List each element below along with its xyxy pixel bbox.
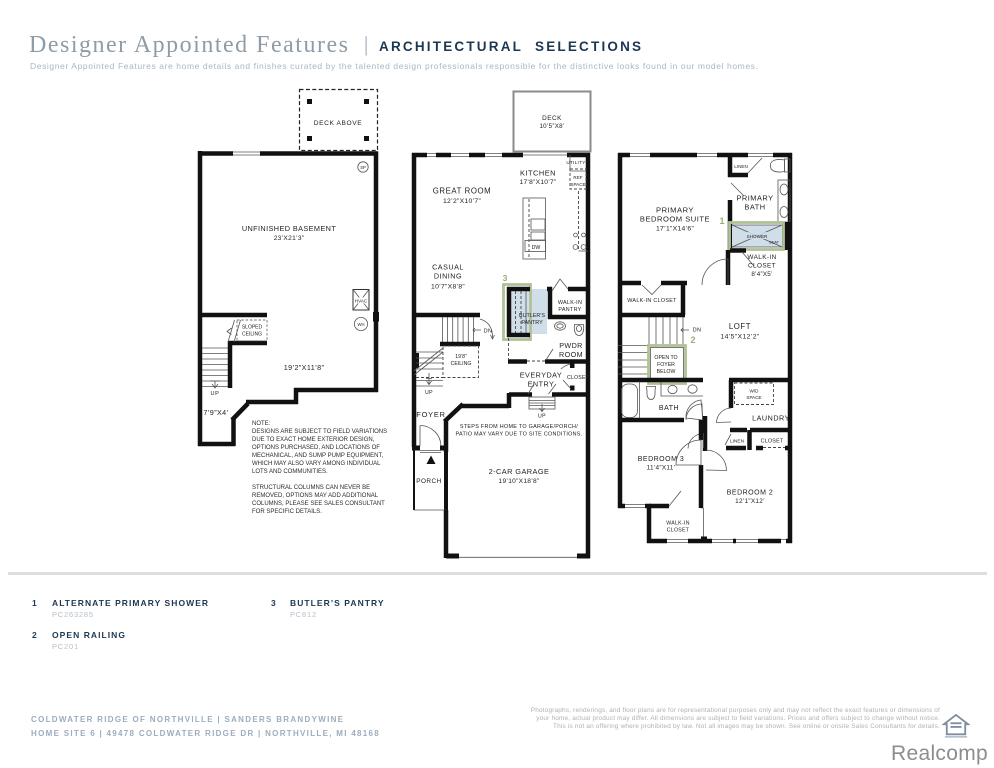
svg-text:PORCH: PORCH: [416, 478, 442, 485]
svg-text:CASUAL: CASUAL: [432, 263, 464, 272]
svg-text:23’X21’3”: 23’X21’3”: [274, 235, 305, 242]
svg-text:WH: WH: [358, 322, 365, 327]
svg-text:BEDROOM 2: BEDROOM 2: [727, 490, 774, 497]
svg-text:PANTRY: PANTRY: [521, 320, 543, 326]
svg-text:DN: DN: [693, 328, 701, 334]
svg-text:10’5”X8’: 10’5”X8’: [539, 123, 564, 130]
svg-text:OPTIONS PURCHASED, AND LOCATIO: OPTIONS PURCHASED, AND LOCATIONS OF: [252, 445, 380, 451]
svg-text:KITCHEN: KITCHEN: [520, 169, 556, 178]
svg-text:BATH: BATH: [744, 203, 765, 212]
svg-text:UTILITY: UTILITY: [566, 160, 585, 165]
svg-text:CLOSET: CLOSET: [567, 375, 590, 381]
svg-text:19’2”X11’8”: 19’2”X11’8”: [284, 363, 325, 372]
svg-text:LOTS AND COMMUNITIES.: LOTS AND COMMUNITIES.: [252, 469, 328, 475]
svg-text:BELOW: BELOW: [657, 369, 676, 375]
svg-text:EVERYDAY: EVERYDAY: [520, 371, 562, 380]
svg-text:DECK: DECK: [542, 115, 562, 122]
svg-text:11’4”X11’: 11’4”X11’: [647, 465, 676, 472]
svg-text:OPEN TO: OPEN TO: [654, 355, 677, 361]
svg-text:UP: UP: [211, 391, 220, 397]
svg-text:WALK-IN: WALK-IN: [558, 300, 582, 306]
svg-text:SLOPED: SLOPED: [242, 325, 263, 331]
svg-text:REMOVED, OPTIONS MAY ADD ADDIT: REMOVED, OPTIONS MAY ADD ADDITIONAL: [252, 493, 379, 499]
svg-text:STRUCTURAL COLUMNS CAN NEVER B: STRUCTURAL COLUMNS CAN NEVER BE: [252, 485, 370, 491]
svg-text:BATH: BATH: [659, 405, 679, 412]
svg-text:FOYER: FOYER: [416, 410, 445, 419]
svg-text:12’1”X12’: 12’1”X12’: [735, 498, 765, 505]
svg-text:8’4”X5’: 8’4”X5’: [751, 271, 772, 278]
svg-text:LINEN: LINEN: [734, 164, 748, 169]
svg-text:PATIO MAY VARY DUE TO SITE CON: PATIO MAY VARY DUE TO SITE CONDITIONS.: [455, 432, 582, 438]
svg-text:DW: DW: [532, 245, 541, 251]
svg-text:17’8”X10’7”: 17’8”X10’7”: [519, 179, 556, 186]
svg-text:LOFT: LOFT: [729, 322, 751, 331]
svg-text:CLOSET: CLOSET: [667, 528, 690, 534]
svg-text:SHOWER: SHOWER: [747, 234, 768, 239]
svg-text:1: 1: [719, 216, 724, 226]
svg-text:MECHANICAL, AND SUMP PUMP EQUI: MECHANICAL, AND SUMP PUMP EQUIPMENT,: [252, 453, 383, 459]
svg-text:LAUNDRY: LAUNDRY: [752, 414, 790, 423]
svg-text:FOYER: FOYER: [657, 362, 675, 368]
svg-text:UP: UP: [425, 390, 433, 396]
svg-text:BEDROOM SUITE: BEDROOM SUITE: [640, 215, 710, 224]
svg-text:ROOM: ROOM: [559, 350, 583, 359]
svg-text:CLOSET: CLOSET: [748, 263, 776, 270]
svg-text:SEAT: SEAT: [769, 240, 780, 245]
svg-text:DUE TO EXACT HOME EXTERIOR DES: DUE TO EXACT HOME EXTERIOR DESIGN,: [252, 437, 375, 443]
svg-text:ENTRY: ENTRY: [528, 380, 555, 389]
svg-text:GREAT ROOM: GREAT ROOM: [433, 187, 492, 196]
svg-text:12’2”X10’7”: 12’2”X10’7”: [443, 198, 481, 205]
svg-text:DESIGNS ARE SUBJECT TO FIELD V: DESIGNS ARE SUBJECT TO FIELD VARIATIONS: [252, 429, 387, 435]
svg-text:CEILING: CEILING: [451, 361, 472, 367]
svg-text:SP: SP: [360, 165, 366, 170]
svg-text:LINEN: LINEN: [730, 439, 745, 445]
svg-text:17’1”X14’6”: 17’1”X14’6”: [656, 226, 694, 233]
svg-text:DN: DN: [484, 329, 492, 335]
svg-text:SPACE: SPACE: [746, 395, 761, 400]
svg-text:PANTRY: PANTRY: [558, 307, 581, 313]
svg-text:UNFINISHED BASEMENT: UNFINISHED BASEMENT: [242, 224, 337, 233]
svg-text:COLUMNS, PLEASE SEE SALES CONS: COLUMNS, PLEASE SEE SALES CONSULTANT: [252, 501, 385, 507]
svg-text:14’5”X12’2”: 14’5”X12’2”: [720, 334, 759, 341]
svg-text:PRIMARY: PRIMARY: [736, 194, 773, 203]
svg-text:WALK-IN CLOSET: WALK-IN CLOSET: [627, 298, 677, 304]
svg-text:BUTLER’S: BUTLER’S: [519, 313, 545, 319]
svg-text:PRIMARY: PRIMARY: [656, 206, 694, 215]
svg-text:W/D: W/D: [750, 389, 760, 394]
svg-text:WALK-IN: WALK-IN: [666, 521, 690, 527]
svg-text:10’7”X8’8”: 10’7”X8’8”: [431, 284, 465, 291]
svg-text:2: 2: [690, 335, 695, 345]
svg-text:19’10”X18’8”: 19’10”X18’8”: [499, 478, 540, 485]
svg-text:PWDR: PWDR: [559, 341, 583, 350]
svg-text:19’8”: 19’8”: [455, 354, 467, 360]
svg-text:STEPS FROM HOME TO GARAGE/PORC: STEPS FROM HOME TO GARAGE/PORCH/: [460, 424, 578, 430]
svg-text:2-CAR GARAGE: 2-CAR GARAGE: [489, 467, 550, 476]
svg-text:WHICH MAY ALSO VARY AMONG INDI: WHICH MAY ALSO VARY AMONG INDIVIDUAL: [252, 461, 381, 467]
svg-text:CLOSET: CLOSET: [761, 439, 784, 445]
svg-text:DECK ABOVE: DECK ABOVE: [314, 120, 363, 127]
svg-text:3: 3: [503, 273, 508, 283]
svg-text:DINING: DINING: [434, 272, 462, 281]
svg-text:SPACE: SPACE: [570, 182, 585, 187]
svg-text:REF: REF: [573, 175, 582, 180]
svg-text:NOTE:: NOTE:: [252, 421, 271, 427]
svg-text:HVAC: HVAC: [355, 299, 368, 304]
svg-text:WALK-IN: WALK-IN: [747, 254, 776, 261]
svg-text:UP: UP: [538, 414, 546, 420]
svg-text:CEILING: CEILING: [242, 332, 262, 338]
svg-text:7’9”X4’: 7’9”X4’: [203, 408, 228, 417]
svg-text:FOR SPECIFIC DETAILS.: FOR SPECIFIC DETAILS.: [252, 509, 322, 515]
